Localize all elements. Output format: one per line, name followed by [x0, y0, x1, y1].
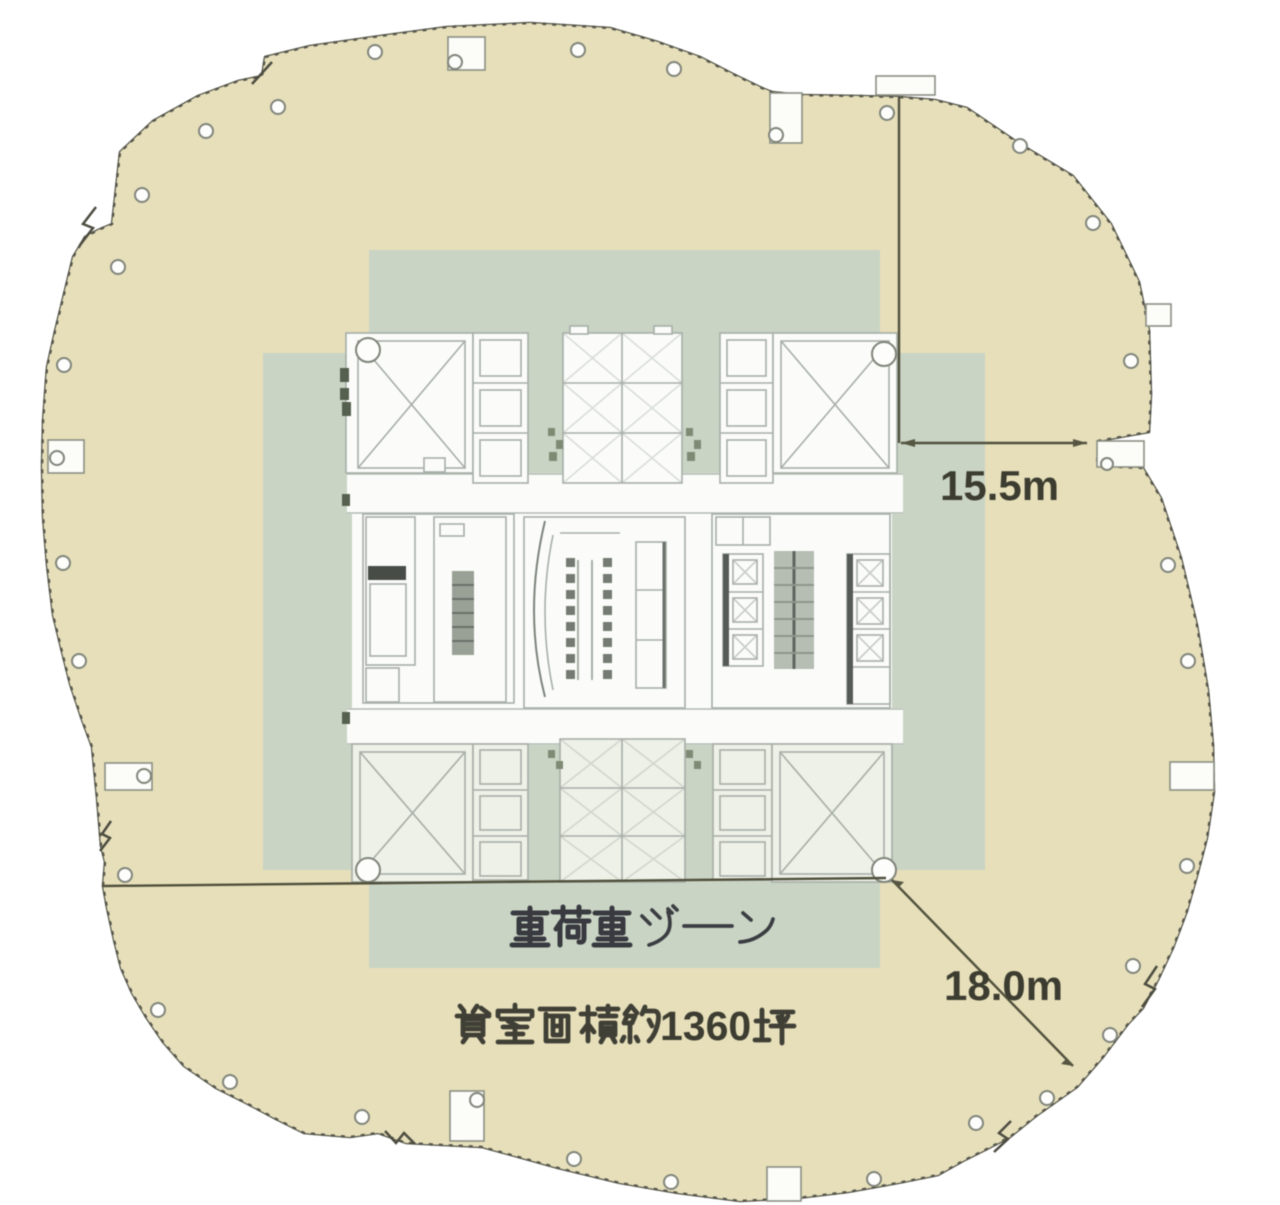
svg-text:1360: 1360	[660, 1003, 751, 1049]
svg-text:18.0m: 18.0m	[944, 962, 1063, 1009]
svg-text:15.5m: 15.5m	[940, 462, 1059, 509]
